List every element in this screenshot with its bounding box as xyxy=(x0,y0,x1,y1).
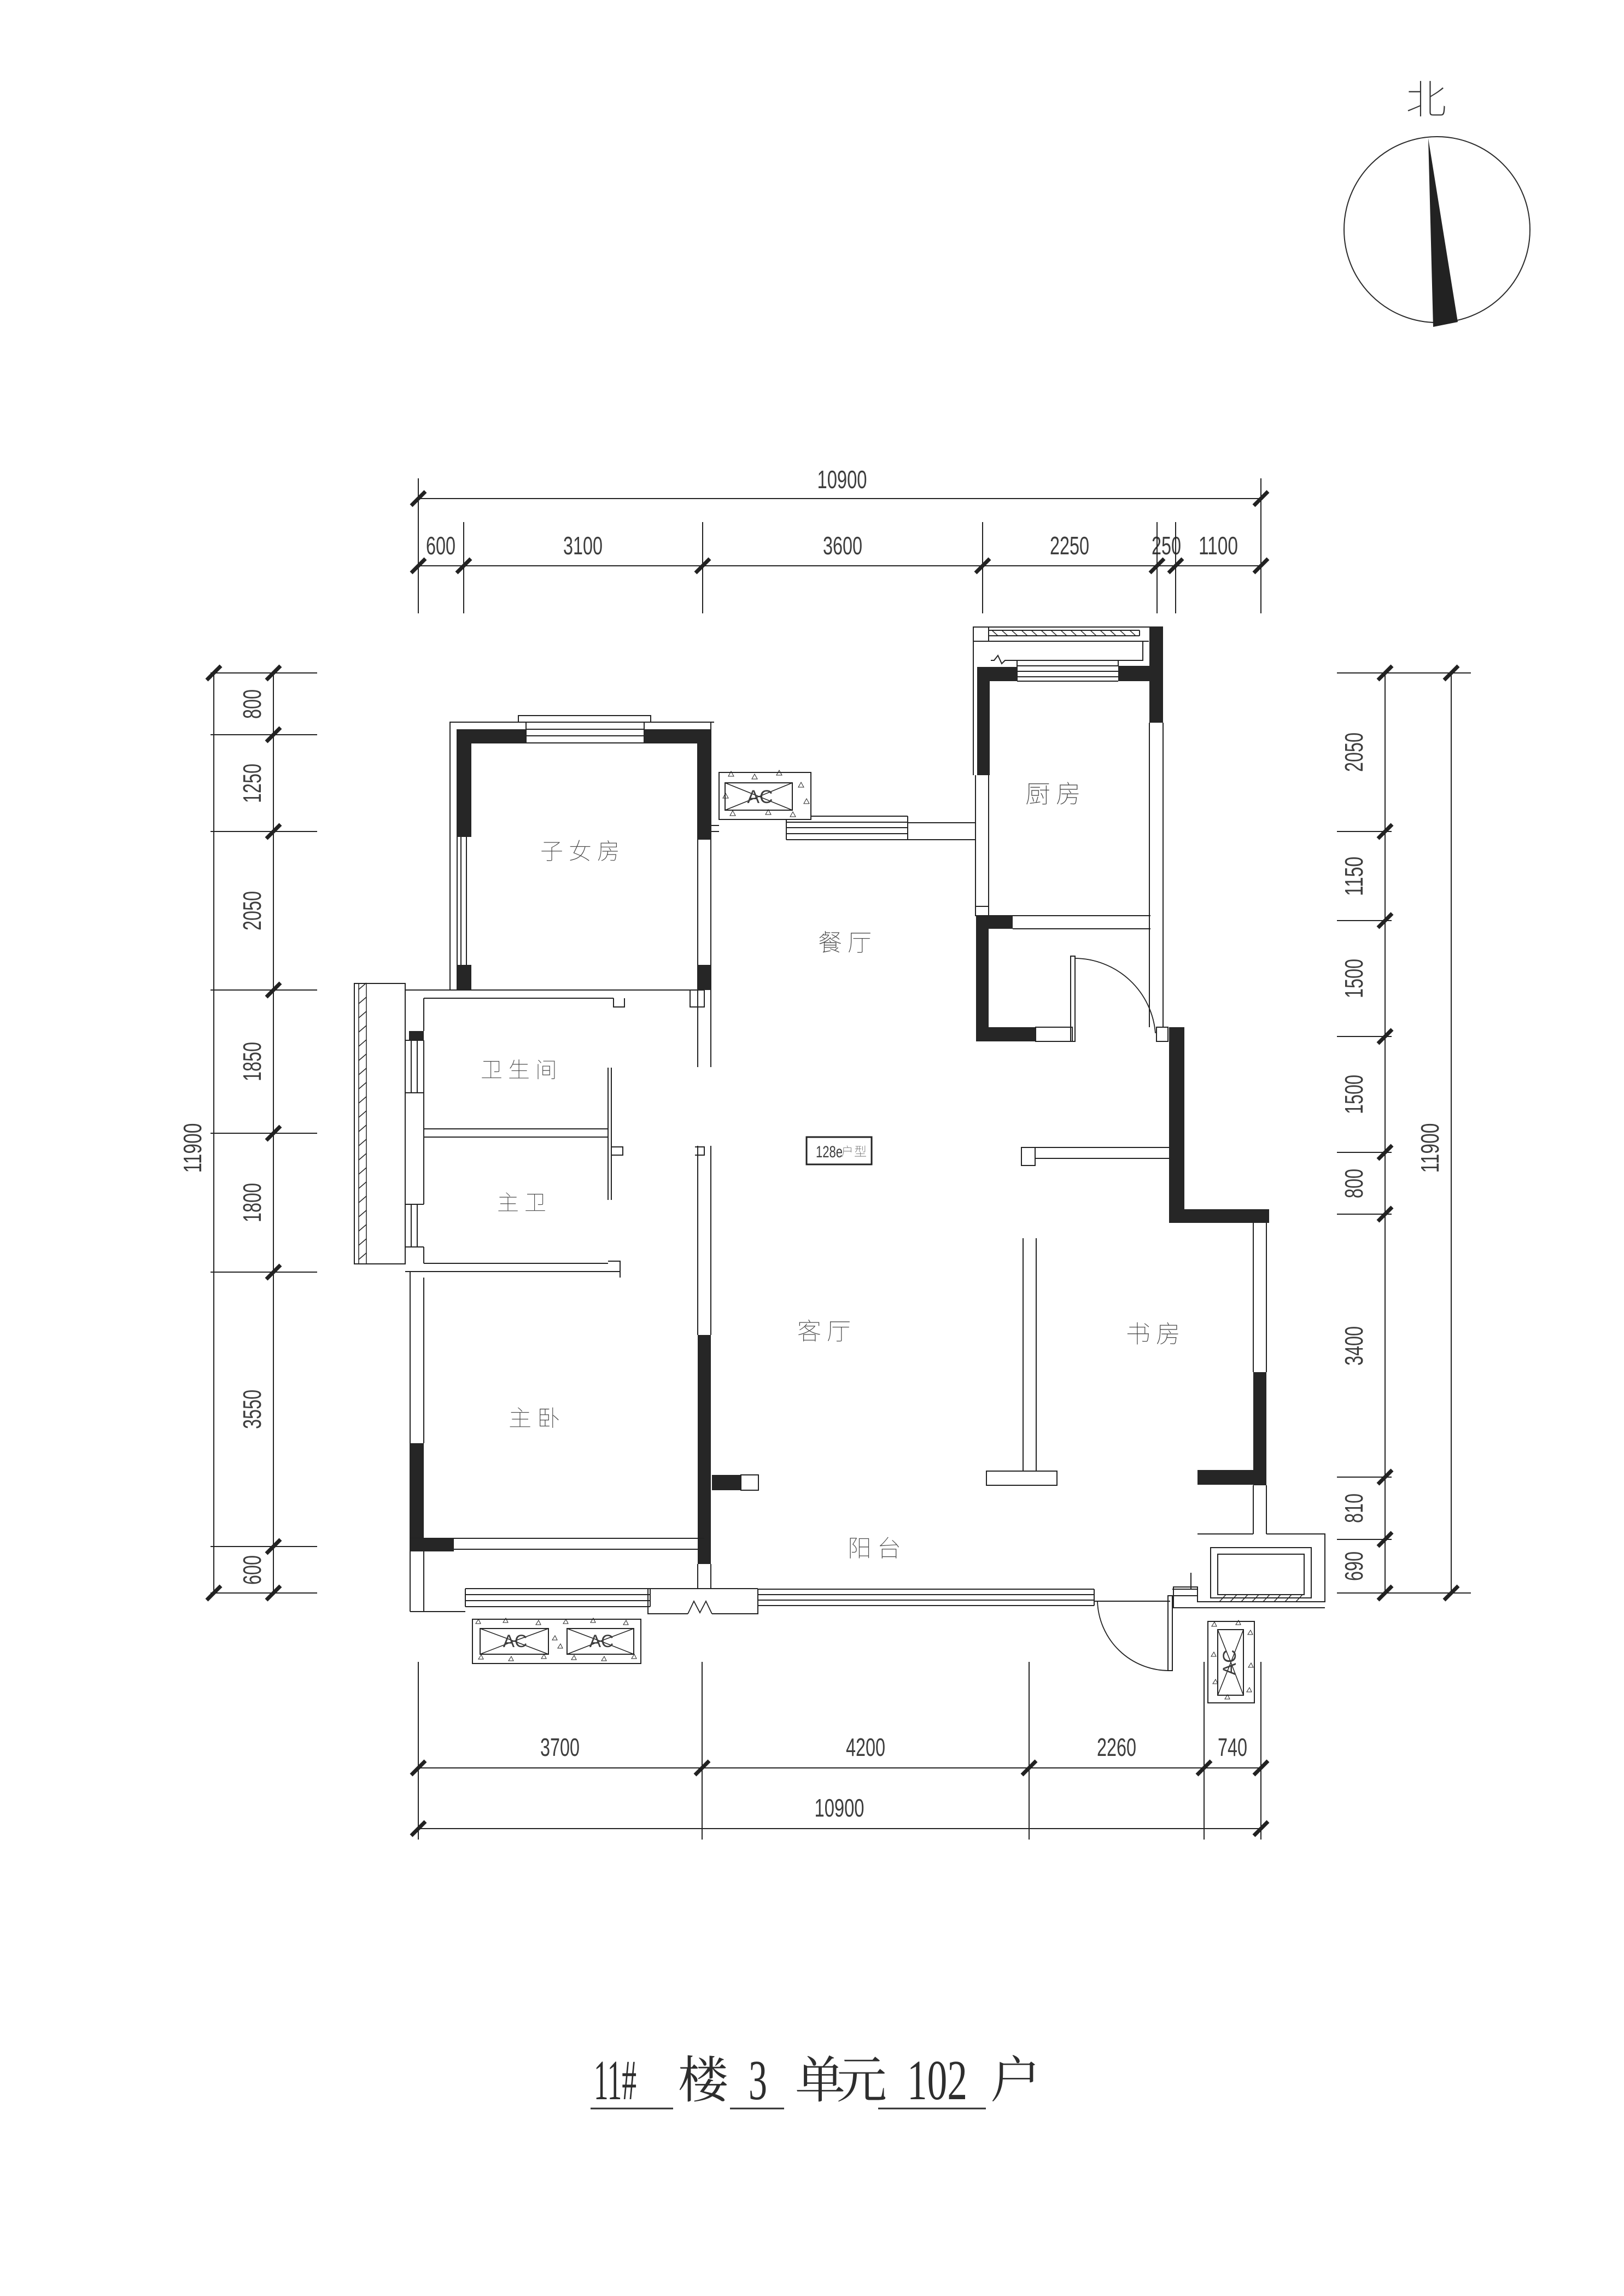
svg-text:2260: 2260 xyxy=(1097,1733,1136,1761)
svg-text:11#: 11# xyxy=(594,2049,636,2112)
svg-text:3: 3 xyxy=(749,2049,767,2112)
svg-text:810: 810 xyxy=(1340,1493,1368,1523)
svg-text:11900: 11900 xyxy=(1416,1123,1444,1173)
svg-text:2250: 2250 xyxy=(1050,531,1089,560)
svg-text:2050: 2050 xyxy=(1340,733,1368,772)
svg-text:690: 690 xyxy=(1340,1551,1368,1581)
svg-text:1500: 1500 xyxy=(1340,959,1368,998)
svg-text:250: 250 xyxy=(1152,531,1181,560)
svg-text:3400: 3400 xyxy=(1340,1326,1368,1366)
svg-text:102: 102 xyxy=(907,2049,967,2112)
svg-text:3600: 3600 xyxy=(823,531,862,560)
svg-text:10900: 10900 xyxy=(815,1794,864,1822)
svg-text:1250: 1250 xyxy=(238,764,266,803)
svg-text:800: 800 xyxy=(1340,1169,1368,1198)
svg-text:1150: 1150 xyxy=(1340,857,1368,896)
svg-text:AC: AC xyxy=(747,787,773,807)
svg-text:4200: 4200 xyxy=(846,1733,885,1761)
svg-text:2050: 2050 xyxy=(238,891,266,930)
svg-text:AC: AC xyxy=(503,1631,527,1651)
svg-text:AC: AC xyxy=(589,1631,614,1651)
svg-text:3550: 3550 xyxy=(238,1390,266,1429)
svg-text:3100: 3100 xyxy=(563,531,603,560)
svg-text:1800: 1800 xyxy=(238,1183,266,1222)
svg-text:1850: 1850 xyxy=(238,1042,266,1081)
svg-text:128e: 128e xyxy=(816,1143,843,1161)
svg-text:740: 740 xyxy=(1218,1733,1247,1761)
svg-text:1500: 1500 xyxy=(1340,1075,1368,1114)
svg-text:3700: 3700 xyxy=(540,1733,580,1761)
svg-text:600: 600 xyxy=(238,1555,266,1585)
svg-text:600: 600 xyxy=(426,531,455,560)
svg-text:AC: AC xyxy=(1219,1649,1240,1675)
svg-text:800: 800 xyxy=(238,689,266,719)
svg-text:11900: 11900 xyxy=(178,1123,207,1173)
svg-text:1100: 1100 xyxy=(1199,531,1238,560)
svg-text:10900: 10900 xyxy=(817,465,867,494)
